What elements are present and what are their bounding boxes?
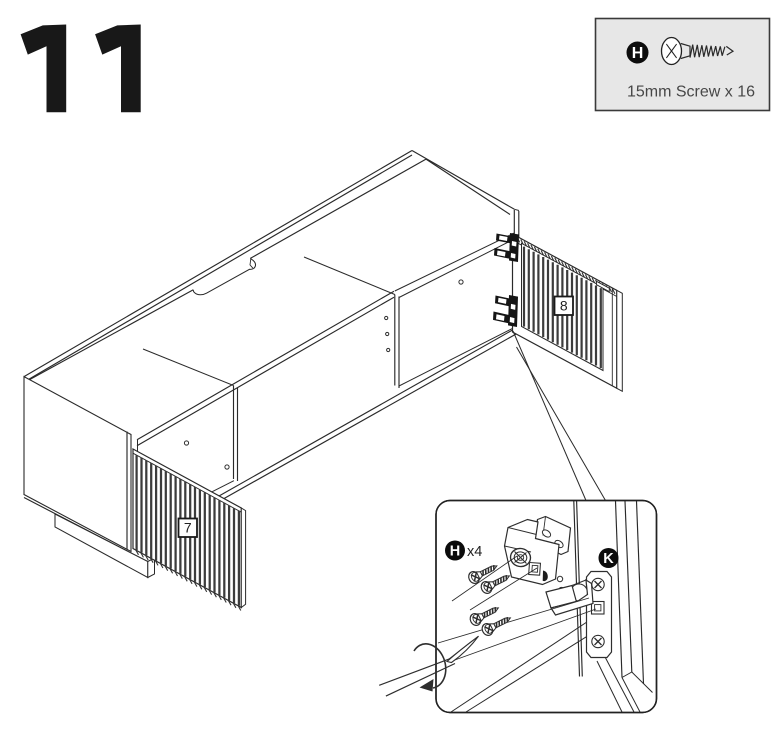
svg-text:15mm Screw x 16: 15mm Screw x 16 — [627, 84, 755, 101]
svg-text:7: 7 — [184, 520, 192, 536]
svg-text:K: K — [603, 551, 614, 567]
svg-text:8: 8 — [560, 298, 568, 314]
svg-text:x4: x4 — [467, 544, 482, 560]
svg-text:H: H — [450, 544, 460, 560]
svg-text:H: H — [632, 45, 644, 62]
